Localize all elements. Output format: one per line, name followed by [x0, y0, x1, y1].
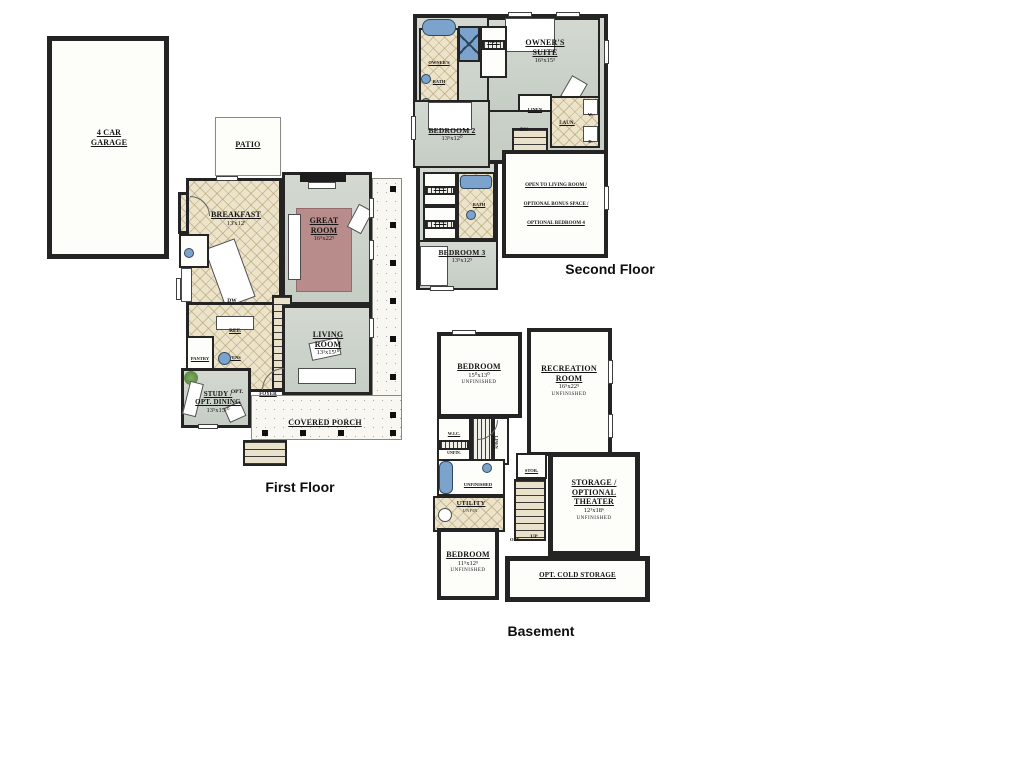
room-name: BATH [473, 202, 485, 207]
room-dims: 16⁵x15⁵ [510, 57, 580, 65]
room-name: FOYER [259, 392, 277, 397]
fireplace-builtins [300, 172, 346, 182]
room-name: OWNER'S [510, 38, 580, 48]
window-marker [216, 176, 238, 181]
room-status: UNFIN. [447, 450, 461, 455]
bonus-note-line: OPTIONAL BONUS SPACE / [524, 202, 589, 207]
room-dims: 13⁵x12⁵ [432, 257, 492, 265]
room-status: UNFINISHED [560, 516, 628, 522]
stairs-direction: DN [520, 127, 528, 133]
room-garage [47, 36, 169, 259]
room-name: STOR. [525, 468, 538, 473]
bonus-note: OPEN TO LIVING ROOM / OPTIONAL BONUS SPA… [512, 172, 600, 230]
room-name: UTILITY [447, 500, 495, 508]
dryer-label: D. [583, 129, 598, 148]
basement-bedroom1-label: BEDROOM 15⁰x13⁰ UNFINISHED [447, 362, 511, 386]
range-counter [181, 268, 192, 302]
room-name: OWNER'S [428, 60, 449, 65]
room-dims: 16⁵x22⁵ [537, 383, 601, 391]
basement-opt-label: OPT. [505, 527, 525, 546]
dn-label: DN [514, 117, 534, 136]
bathtub [439, 461, 453, 494]
wic-label: W.I.C. [480, 29, 507, 48]
window-marker [369, 198, 374, 218]
owners-suite-label: OWNER'S SUITE 16⁵x15⁵ [510, 38, 580, 65]
room-name: LINEN [494, 436, 499, 449]
up-label: UP [524, 524, 544, 543]
basement-bedroom2-label: BEDROOM 11⁵x12⁵ UNFINISHED [441, 550, 495, 574]
room-dims: 13⁵x12⁰ [415, 135, 489, 143]
patio-label: PATIO [215, 140, 281, 150]
room-dims: 11⁵x12⁵ [441, 560, 495, 568]
wic-label: W.I.C. [423, 209, 457, 228]
garage-label: 4 CAR GARAGE [67, 128, 151, 147]
second-floor-title: Second Floor [545, 261, 675, 277]
porch-column [390, 336, 396, 342]
basement-title: Basement [481, 623, 601, 639]
room-name: ROOM [537, 374, 601, 384]
room-name: W.I.C. [434, 219, 446, 224]
porch-column [390, 430, 396, 436]
window-marker [369, 318, 374, 338]
room-name: W.I.C. [448, 431, 460, 436]
window-marker [604, 40, 609, 64]
room-status: UNFINISHED [537, 392, 601, 398]
dryer-label-text: D. [588, 139, 592, 144]
room-name: GREAT [298, 216, 350, 226]
cold-storage-label: OPT. COLD STORAGE [520, 571, 635, 579]
room-name: COVERED PORCH [270, 418, 380, 428]
porch-column [390, 222, 396, 228]
stor-label: STOR. [516, 458, 547, 477]
room-name: BATH [433, 79, 445, 84]
room-name: LINEN [528, 107, 542, 112]
basement-linen-label: LINEN [496, 424, 506, 460]
window-marker [452, 330, 476, 335]
powder-sink [218, 352, 231, 365]
porch-column [300, 430, 306, 436]
room-name: PATIO [215, 140, 281, 150]
room-status: UNFIN. [447, 509, 495, 514]
toilet [184, 248, 194, 258]
porch-column [338, 430, 344, 436]
refrigerator-label: REF. [229, 328, 241, 334]
living-sofa [298, 368, 356, 384]
bath-label: BATH [468, 192, 490, 211]
owners-bath-label: OWNER'S BATH [420, 50, 458, 88]
window-marker [176, 278, 181, 300]
laundry-label: LAUN. [550, 110, 584, 129]
opt-label-text: OPT. [231, 389, 243, 395]
room-dims: 15⁰x13⁰ [447, 372, 511, 380]
window-marker [411, 116, 416, 140]
room-status: UNFINISHED [441, 568, 495, 574]
utility-label: UTILITY UNFIN. [447, 500, 495, 514]
ref-label: REF. [216, 318, 254, 337]
room-name: THEATER [560, 497, 628, 507]
bathtub [422, 19, 456, 36]
porch-column [390, 298, 396, 304]
room-name: W.I.C. [487, 39, 499, 44]
room-dims: 13¹x15¹⁰ [300, 349, 356, 357]
porch-column [390, 260, 396, 266]
window-marker [556, 12, 580, 17]
room-dims: 13'x12' [196, 220, 276, 228]
window-marker [430, 286, 454, 291]
great-room-label: GREAT ROOM 16⁵x22⁵ [298, 216, 350, 243]
bedroom3-label: BEDROOM 3 13⁵x12⁵ [432, 248, 492, 265]
room-dims: 13⁵x15¹⁰ [188, 407, 248, 415]
porch-column [390, 374, 396, 380]
window-marker [369, 240, 374, 260]
room-name: OPT. DINING [188, 398, 248, 406]
room-name: GARAGE [67, 138, 151, 148]
room-dims: 12¹x18⁶ [560, 507, 628, 515]
porch-column [390, 412, 396, 418]
room-name: BEDROOM 2 [415, 126, 489, 135]
wic-label: W.I.C. [423, 175, 457, 194]
linen-label: LINEN [518, 97, 552, 116]
rec-room-label: RECREATION ROOM 16⁵x22⁵ UNFINISHED [537, 364, 601, 398]
opt-door-label: OPT. [226, 379, 248, 398]
hearth [308, 182, 336, 189]
theater-label: STORAGE / OPTIONAL THEATER 12¹x18⁶ UNFIN… [560, 478, 628, 522]
bonus-note-line: OPTIONAL BEDROOM 4 [527, 221, 585, 226]
room-name: UNFINISHED [464, 482, 492, 487]
room-name: ROOM [298, 226, 350, 236]
room-name: LAUN. [559, 121, 574, 126]
pantry-label: PANTRY [184, 346, 216, 365]
window-marker [604, 186, 609, 210]
bonus-note-line: OPEN TO LIVING ROOM / [525, 183, 587, 188]
window-marker [608, 414, 613, 438]
first-floor-title: First Floor [240, 479, 360, 495]
living-room-label: LIVING ROOM 13¹x15¹⁰ [300, 330, 356, 357]
bathtub [460, 175, 492, 189]
room-name: 4 CAR [67, 128, 151, 138]
opt-label-text: OPT. [510, 537, 520, 542]
bedroom2-label: BEDROOM 2 13⁵x12⁰ [415, 126, 489, 143]
room-name: BEDROOM [441, 550, 495, 560]
room-name: STORAGE / [560, 478, 628, 488]
window-marker [508, 12, 532, 17]
porch-column [390, 186, 396, 192]
washer-label-text: W. [588, 112, 593, 117]
porch-column [262, 430, 268, 436]
room-name: ROOM [300, 340, 356, 350]
washer-label: W. [583, 102, 598, 121]
room-dims: 16⁵x22⁵ [298, 235, 350, 243]
floor-plan-sheet: 4 CAR GARAGE PATIO COVERED PORCH MUD [0, 0, 1024, 768]
window-marker [608, 360, 613, 384]
room-name: BEDROOM [447, 362, 511, 372]
shower [458, 26, 480, 62]
room-name: RECREATION [537, 364, 601, 374]
covered-porch-label: COVERED PORCH [270, 418, 380, 428]
room-name: PANTRY [191, 356, 209, 361]
stairs-direction: UP [530, 534, 537, 540]
basement-wic-label: W.I.C. UNFIN. [437, 421, 471, 459]
room-name: LIVING [300, 330, 356, 340]
bath-sink [466, 210, 476, 220]
room-name: W.I.C. [434, 185, 446, 190]
front-steps [243, 440, 287, 466]
room-status: UNFINISHED [447, 380, 511, 386]
room-name: BEDROOM 3 [432, 248, 492, 257]
window-marker [198, 424, 218, 429]
room-name: SUITE [510, 48, 580, 58]
room-name: OPT. COLD STORAGE [520, 571, 635, 579]
room-name: OPTIONAL [560, 488, 628, 498]
